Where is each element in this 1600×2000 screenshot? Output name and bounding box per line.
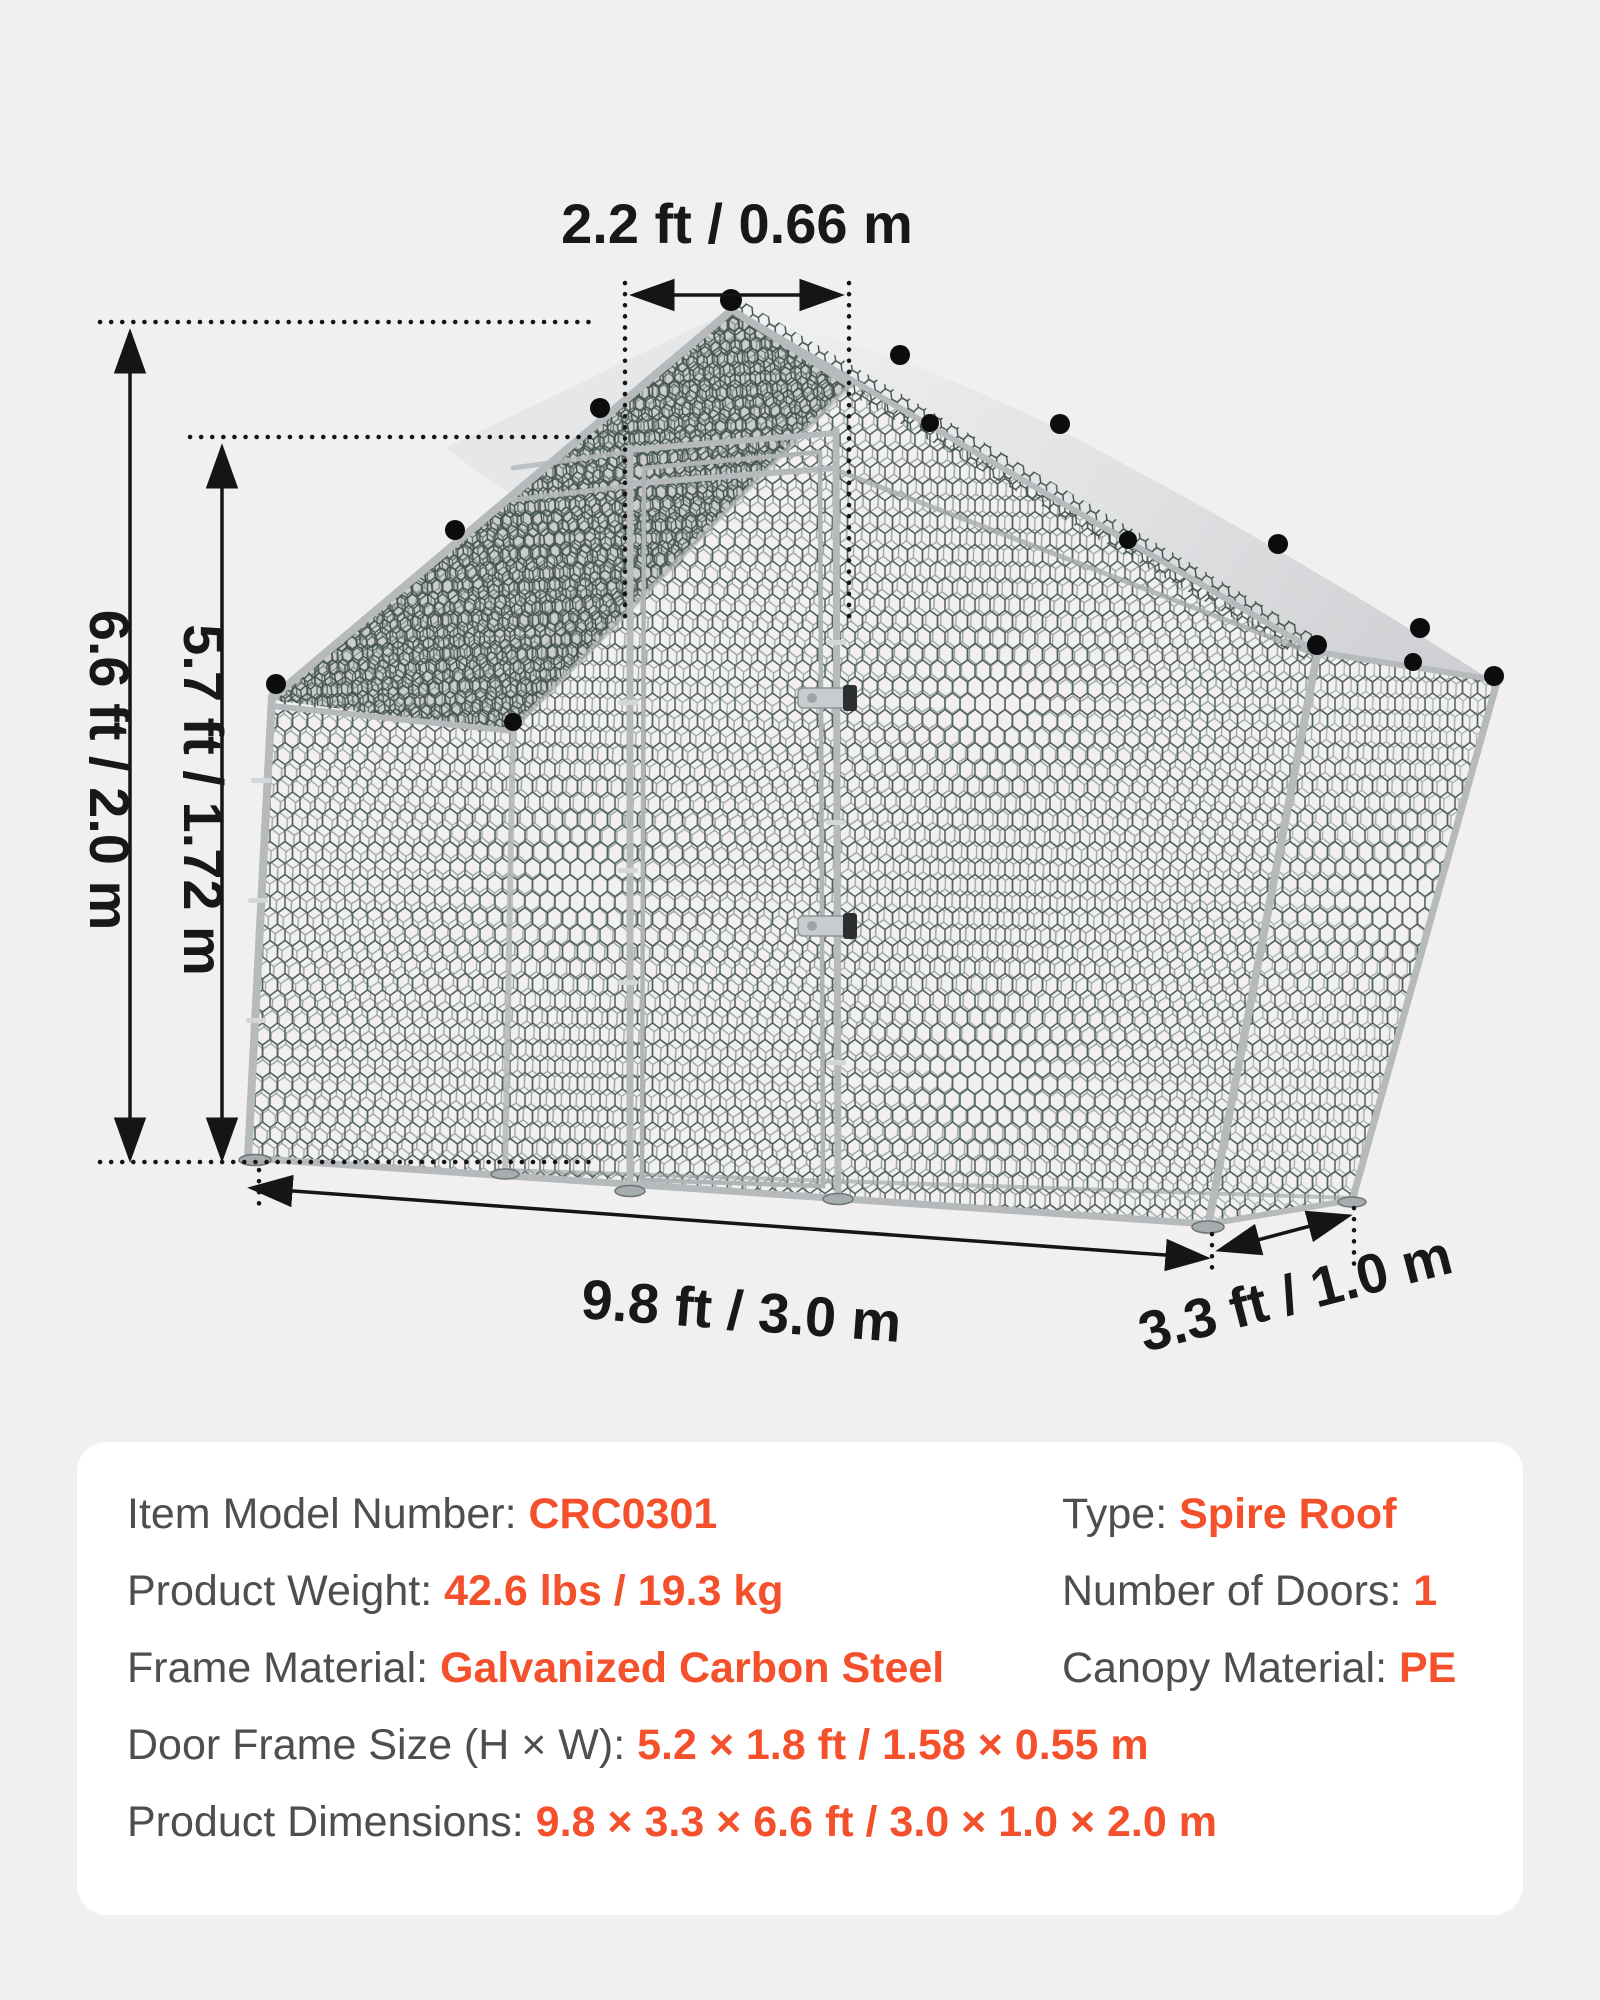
spec-label: Door Frame Size (H × W): [127, 1721, 637, 1769]
spec-panel: Item Model Number: CRC0301 Type: Spire R… [77, 1442, 1523, 1915]
spec-label: Product Weight: [127, 1567, 444, 1615]
spec-canopy-material: Canopy Material: PE [1062, 1645, 1456, 1692]
spec-number-of-doors: Number of Doors: 1 [1062, 1568, 1437, 1615]
dim-label-length: 9.8 ft / 3.0 m [579, 1267, 903, 1354]
spec-label: Number of Doors: [1062, 1567, 1413, 1615]
spec-product-dimensions: Product Dimensions: 9.8 × 3.3 × 6.6 ft /… [127, 1799, 1217, 1846]
spec-row: Item Model Number: CRC0301 Type: Spire R… [127, 1476, 1493, 1553]
spec-label: Frame Material: [127, 1644, 440, 1692]
spec-value: Galvanized Carbon Steel [440, 1644, 944, 1692]
spec-frame-material: Frame Material: Galvanized Carbon Steel [127, 1645, 1062, 1692]
spec-value: Spire Roof [1179, 1490, 1396, 1538]
spec-row: Product Dimensions: 9.8 × 3.3 × 6.6 ft /… [127, 1784, 1493, 1861]
dim-label-depth: 3.3 ft / 1.0 m [1132, 1222, 1458, 1363]
spec-label: Item Model Number: [127, 1490, 528, 1538]
spec-value: 9.8 × 3.3 × 6.6 ft / 3.0 × 1.0 × 2.0 m [536, 1798, 1217, 1846]
spec-row: Frame Material: Galvanized Carbon Steel … [127, 1630, 1493, 1707]
spec-product-weight: Product Weight: 42.6 lbs / 19.3 kg [127, 1568, 1062, 1615]
spec-value: PE [1399, 1644, 1456, 1692]
spec-type: Type: Spire Roof [1062, 1491, 1397, 1538]
spec-item-model-number: Item Model Number: CRC0301 [127, 1491, 1062, 1538]
coop-diagram: 2.2 ft / 0.66 m 6.6 ft / 2.0 m 5.7 ft / … [0, 0, 1600, 1442]
dim-label-ridge-width: 2.2 ft / 0.66 m [561, 192, 913, 255]
spec-value: 1 [1413, 1567, 1437, 1615]
spec-label: Canopy Material: [1062, 1644, 1399, 1692]
spec-value: 42.6 lbs / 19.3 kg [444, 1567, 783, 1615]
coop-illustration [239, 289, 1504, 1233]
spec-row: Product Weight: 42.6 lbs / 19.3 kg Numbe… [127, 1553, 1493, 1630]
dim-label-wall-height: 5.7 ft / 1.72 m [172, 624, 235, 976]
product-dimension-infographic: 2.2 ft / 0.66 m 6.6 ft / 2.0 m 5.7 ft / … [0, 0, 1600, 2000]
dim-label-total-height: 6.6 ft / 2.0 m [78, 610, 141, 931]
spec-row: Door Frame Size (H × W): 5.2 × 1.8 ft / … [127, 1707, 1493, 1784]
spec-value: 5.2 × 1.8 ft / 1.58 × 0.55 m [637, 1721, 1149, 1769]
spec-label: Type: [1062, 1490, 1179, 1538]
spec-label: Product Dimensions: [127, 1798, 536, 1846]
spec-value: CRC0301 [528, 1490, 717, 1538]
spec-door-frame-size: Door Frame Size (H × W): 5.2 × 1.8 ft / … [127, 1722, 1149, 1769]
